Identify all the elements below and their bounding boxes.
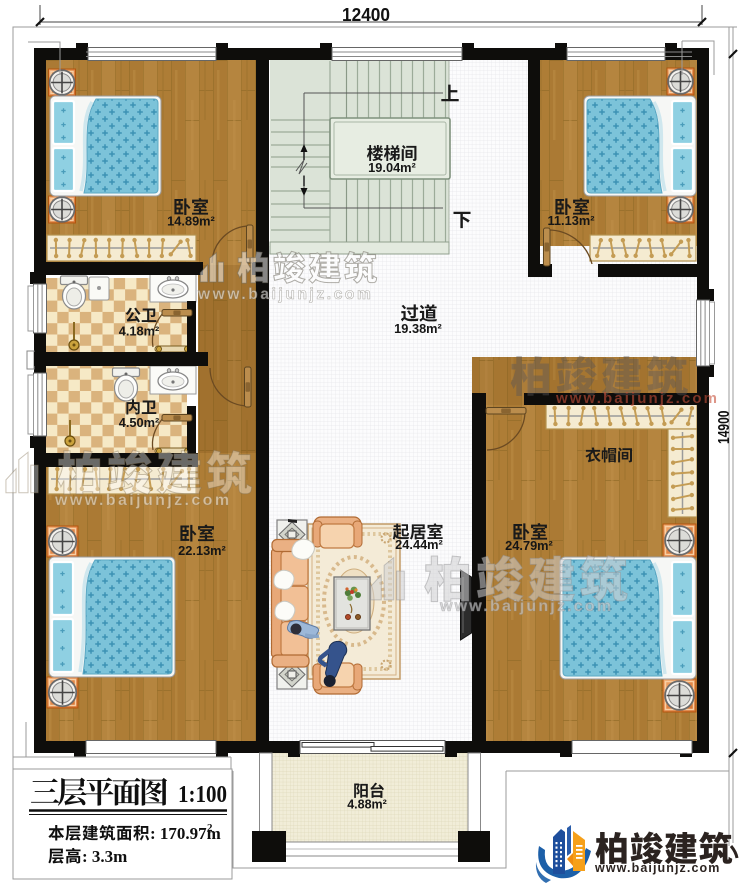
svg-text:19.38m²: 19.38m² bbox=[394, 321, 442, 336]
svg-text:24.79m²: 24.79m² bbox=[505, 538, 553, 553]
svg-text:: 3.3m: : 3.3m bbox=[82, 847, 127, 866]
svg-text:1:100: 1:100 bbox=[178, 781, 227, 808]
svg-text:12400: 12400 bbox=[342, 4, 390, 25]
svg-text:24.44m²: 24.44m² bbox=[395, 537, 443, 552]
svg-text:22.13m²: 22.13m² bbox=[178, 543, 226, 558]
svg-text:www.baijunjz.com: www.baijunjz.com bbox=[197, 286, 373, 303]
svg-text:www.baijunjz.com: www.baijunjz.com bbox=[54, 492, 232, 509]
svg-text:www.baijunjz.com: www.baijunjz.com bbox=[439, 598, 613, 615]
svg-text:4.88m²: 4.88m² bbox=[347, 798, 387, 812]
svg-text:4.18m²: 4.18m² bbox=[119, 324, 160, 339]
svg-text:www.baijunjz.com: www.baijunjz.com bbox=[594, 861, 720, 875]
svg-text:www.baijunjz.com: www.baijunjz.com bbox=[555, 390, 719, 407]
svg-text:19.04m²: 19.04m² bbox=[368, 160, 416, 175]
svg-text:14.89m²: 14.89m² bbox=[167, 214, 215, 229]
svg-text:14900: 14900 bbox=[716, 411, 733, 445]
svg-text:4.50m²: 4.50m² bbox=[119, 415, 160, 430]
svg-text:11.13m²: 11.13m² bbox=[548, 213, 595, 228]
svg-text:2: 2 bbox=[207, 822, 213, 834]
